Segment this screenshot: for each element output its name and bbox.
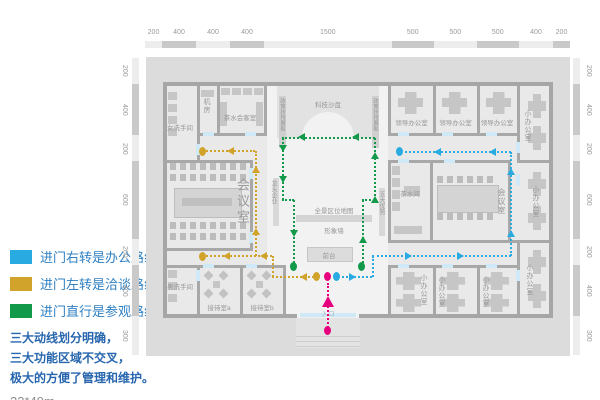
room-label-panorama-map: 全景区位地图 <box>296 205 372 215</box>
route-arrow-left-icon <box>296 273 307 281</box>
office-route-line <box>372 255 511 257</box>
route-arrow-left-icon <box>430 148 441 156</box>
wall <box>167 160 253 163</box>
door-marker <box>203 132 214 136</box>
dim-label: 300 <box>119 316 130 355</box>
route-arrow-left-icon <box>485 148 496 156</box>
door-marker <box>486 264 497 268</box>
negotiation-route-end-dot <box>199 147 206 156</box>
room-label-small-office: 小办公室 <box>436 276 446 308</box>
conference-table-inner <box>182 198 232 206</box>
dim-label: 200 <box>583 58 594 84</box>
room-label-small-office: 小办公室 <box>530 186 540 218</box>
door-marker <box>398 159 409 163</box>
dim-label: 400 <box>583 265 594 317</box>
route-arrow-down-icon <box>290 230 298 241</box>
counter <box>392 178 400 187</box>
cabinet <box>243 88 252 95</box>
route-arrow-right-icon <box>349 273 360 281</box>
office-route-swatch-icon <box>10 250 32 264</box>
wc-fixture <box>168 104 177 112</box>
route-arrow-left-icon <box>256 252 267 260</box>
route-arrow-up-icon <box>252 224 260 235</box>
office-route-end-dot <box>396 147 403 156</box>
conference-table <box>437 185 499 213</box>
step-line <box>296 346 360 347</box>
room-label-tea-reception: 茶水会客室 <box>216 112 264 122</box>
seat-row <box>170 163 248 170</box>
route-arrow-down-icon <box>279 176 287 187</box>
cabinet <box>221 88 230 95</box>
counter <box>392 166 400 175</box>
wall <box>388 240 549 243</box>
room-label-meeting-room: 会议室 <box>233 178 252 226</box>
door-marker <box>516 174 520 185</box>
dim-label: 200 <box>556 29 568 36</box>
room-label-women-wc: 女洗手间 <box>163 122 197 132</box>
dim-label: 200 <box>119 58 130 84</box>
wc-fixture <box>168 270 177 278</box>
room-label-reception-a: 接待室a <box>198 302 240 312</box>
route-arrow-up-icon <box>371 192 379 203</box>
desk <box>398 92 423 114</box>
room-label-leader-office: 领导办公室 <box>477 117 517 127</box>
room-label-small-office: 小办公室 <box>418 274 428 306</box>
route-arrow-right-icon <box>405 252 416 260</box>
negotiation-route-line <box>272 276 318 278</box>
wall <box>517 160 549 163</box>
door-marker <box>486 132 497 136</box>
door-marker <box>398 132 409 136</box>
route-arrow-up-icon <box>371 148 379 159</box>
wall <box>430 163 433 240</box>
dim-label: 200 <box>583 239 594 265</box>
dim-label: 1500 <box>320 29 336 36</box>
room-label-reception-b: 接待室b <box>241 302 283 312</box>
seat-row <box>170 233 248 240</box>
entrance-route-start-dot <box>324 326 331 335</box>
ruler-top-labels: 200 400 400 400 1500 500 500 500 400 200 <box>145 27 570 38</box>
dim-label: 600 <box>119 161 130 238</box>
wall <box>283 265 286 314</box>
route-arrow-up-icon <box>507 164 515 175</box>
building-size-label: 23*49m <box>10 394 145 400</box>
wall <box>388 163 391 240</box>
dim-label: 300 <box>583 316 594 355</box>
dim-label: 500 <box>407 29 419 36</box>
office-route-start-dot <box>333 272 340 281</box>
door-marker <box>516 270 520 281</box>
room-label-policy-board: 政策扶持展板 <box>278 98 286 131</box>
map-wall-panel <box>296 215 372 222</box>
cabinet <box>232 88 241 95</box>
dim-label: 500 <box>449 29 461 36</box>
route-arrow-up-icon <box>359 232 367 243</box>
route-arrow-up-icon <box>252 162 260 173</box>
door-marker <box>442 132 453 136</box>
door-marker <box>444 159 455 163</box>
negotiation-route-start-dot <box>313 272 320 281</box>
ruler-left-labels: 200 400 200 600 200 400 300 <box>119 58 130 355</box>
dim-label: 400 <box>241 29 253 36</box>
office-route-line <box>372 256 374 277</box>
door-marker <box>246 264 257 268</box>
door-marker <box>442 264 453 268</box>
counter <box>392 202 400 211</box>
negotiation-route-line <box>272 256 274 277</box>
visit-route-swatch-icon <box>10 304 32 318</box>
ruler-left-bar <box>132 58 139 355</box>
dim-label: 400 <box>119 265 130 317</box>
note-line: 极大的方便了管理和维护。 <box>10 368 145 388</box>
room-label-tech-sandbox: 科技沙盘 <box>298 99 358 109</box>
wc-fixture <box>168 92 177 100</box>
wall <box>217 86 220 133</box>
door-marker <box>516 142 520 153</box>
visit-route-end-dot <box>358 262 365 271</box>
room-label-front-desk: 前台 <box>307 250 351 260</box>
floor-plan-page: 进门右转是办公路线 进门左转是洽谈路线 进门直行是参观路线 三大动线划分明确， … <box>0 0 600 400</box>
counter <box>394 226 422 234</box>
ruler-top-bar <box>145 41 570 48</box>
dim-label: 400 <box>119 84 130 136</box>
door-marker <box>203 264 214 268</box>
wall <box>388 268 391 314</box>
legend-item-label: 进门右转是办公路线 <box>40 247 157 266</box>
entrance-route-junction-dot <box>324 272 331 281</box>
legend-item-label: 进门直行是参观路线 <box>40 301 157 320</box>
route-arrow-left-icon <box>219 252 230 260</box>
visit-route-end-dot <box>290 262 297 271</box>
negotiation-route-end-dot <box>199 252 206 261</box>
cabinet <box>254 88 263 95</box>
route-arrow-left-icon <box>348 133 359 141</box>
wall <box>167 265 286 268</box>
room-label-small-office: 小办公室 <box>522 110 532 142</box>
route-arrow-left-icon <box>294 133 305 141</box>
desk <box>486 92 511 114</box>
route-arrow-up-icon <box>507 226 515 237</box>
wall <box>167 248 253 251</box>
dim-label: 500 <box>492 29 504 36</box>
seat-row <box>437 213 497 220</box>
dim-label: 200 <box>583 135 594 161</box>
room-label-tea-room: 茶水间 <box>392 188 428 198</box>
dim-label: 400 <box>583 84 594 136</box>
room-label-leading-enterprises: 龙头企业 <box>269 180 278 204</box>
dim-label: 400 <box>530 29 542 36</box>
room-label-leader-office: 领导办公室 <box>434 117 477 127</box>
desk <box>442 92 467 114</box>
room-label-small-office: 小办公室 <box>480 276 490 308</box>
negotiation-route-swatch-icon <box>10 277 32 291</box>
dim-label: 400 <box>207 29 219 36</box>
seat-row <box>437 176 497 183</box>
table <box>256 281 263 288</box>
machine-rack <box>201 90 214 97</box>
door-marker <box>398 264 409 268</box>
dim-label: 600 <box>583 161 594 238</box>
ruler-right-bar <box>573 58 580 355</box>
step-line <box>296 341 360 342</box>
room-label-policy-board: 政策扶持展板 <box>371 98 379 131</box>
route-arrow-right-icon <box>457 252 468 260</box>
door-marker <box>245 132 256 136</box>
legend-item-label: 进门左转是洽谈路线 <box>40 274 157 293</box>
wall <box>264 86 267 133</box>
door-marker <box>196 270 200 281</box>
route-arrow-down-icon <box>279 145 287 156</box>
route-arrow-left-icon <box>223 147 234 155</box>
dim-label: 200 <box>148 29 160 36</box>
wc-fixture <box>168 294 177 302</box>
route-arrow-up-icon <box>322 290 334 307</box>
room-label-meeting-room: 会议室 <box>496 188 507 215</box>
room-label-machine-room: 机房 <box>201 98 211 114</box>
room-label-small-office: 小办公室 <box>524 264 534 296</box>
table <box>213 281 220 288</box>
step-line <box>296 336 360 337</box>
room-label-leader-office: 领导办公室 <box>390 117 433 127</box>
dim-label: 200 <box>119 135 130 161</box>
dim-label: 400 <box>173 29 185 36</box>
room-label-men-wc: 男洗手间 <box>163 281 197 291</box>
dim-label: 200 <box>119 239 130 265</box>
ruler-right-labels: 200 400 200 600 200 400 300 <box>583 58 594 355</box>
